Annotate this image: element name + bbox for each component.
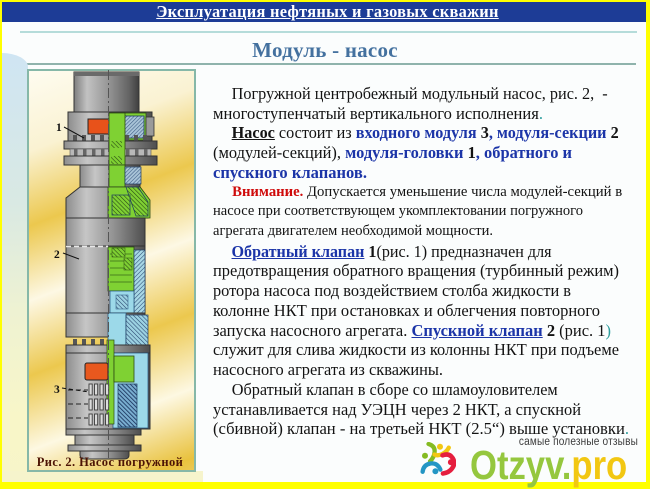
svg-text:2: 2	[54, 249, 60, 261]
svg-text:Рис. 2. Насос погружной: Рис. 2. Насос погружной	[37, 455, 184, 469]
svg-text:3: 3	[54, 384, 60, 396]
svg-text:1: 1	[56, 122, 62, 134]
